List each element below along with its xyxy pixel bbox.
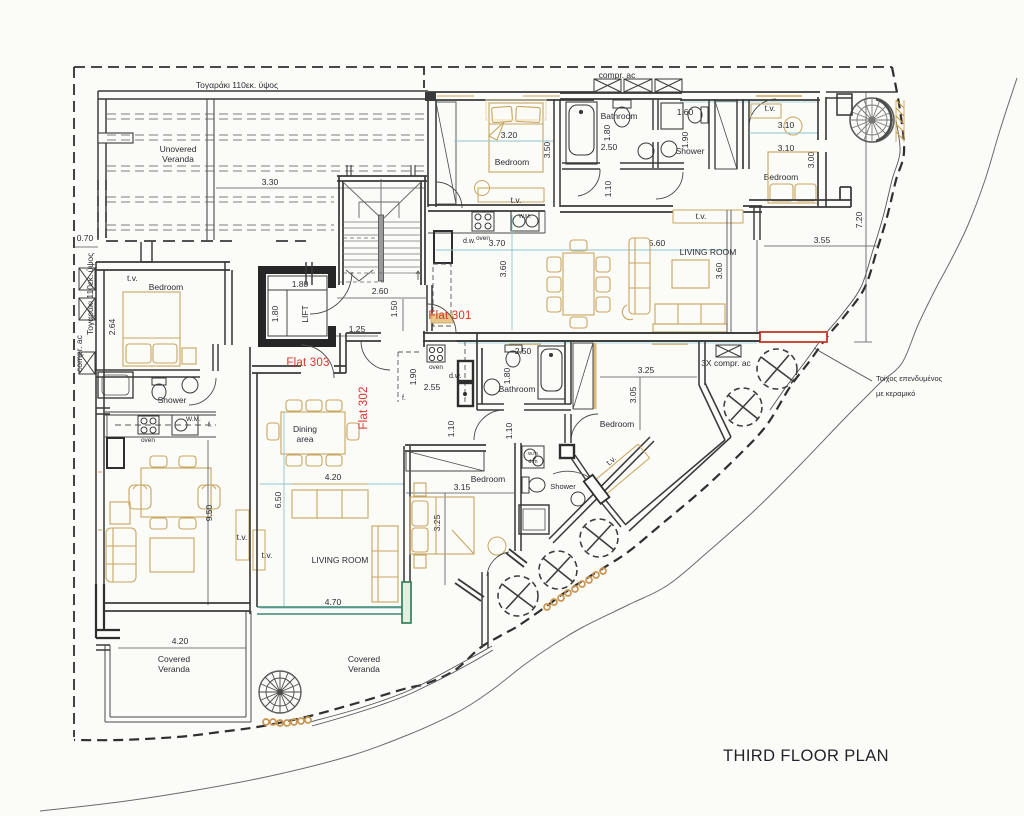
svg-text:6.50: 6.50 — [273, 491, 283, 508]
svg-text:t.v.: t.v. — [262, 550, 273, 560]
svg-text:3.05: 3.05 — [628, 386, 638, 403]
svg-text:t.v.: t.v. — [765, 103, 776, 113]
svg-text:1.80: 1.80 — [602, 124, 612, 141]
svg-text:Shower: Shower — [676, 146, 705, 156]
svg-text:1.50: 1.50 — [389, 300, 399, 317]
svg-text:Τογαράκι 110εκ. ύψος: Τογαράκι 110εκ. ύψος — [85, 253, 95, 335]
svg-text:3.70: 3.70 — [489, 238, 506, 248]
svg-text:2.50: 2.50 — [601, 142, 618, 152]
svg-text:Bedroom: Bedroom — [764, 172, 799, 182]
svg-text:t.v.: t.v. — [127, 273, 138, 283]
svg-text:3.30: 3.30 — [262, 177, 279, 187]
svg-text:area: area — [296, 434, 313, 444]
svg-text:1.10: 1.10 — [603, 180, 613, 197]
svg-text:1.10: 1.10 — [504, 422, 514, 439]
svg-text:2.60: 2.60 — [372, 286, 389, 296]
svg-text:3.55: 3.55 — [814, 235, 831, 245]
svg-text:w.m: w.m — [527, 451, 538, 457]
svg-text:Bathroom: Bathroom — [499, 384, 536, 394]
svg-text:3.60: 3.60 — [498, 260, 508, 277]
svg-text:d.m: d.m — [528, 459, 538, 465]
svg-text:Bedroom: Bedroom — [149, 282, 184, 292]
svg-text:3.50: 3.50 — [542, 141, 552, 158]
svg-text:2.55: 2.55 — [424, 382, 441, 392]
svg-text:9.50: 9.50 — [204, 504, 214, 521]
svg-text:3.10: 3.10 — [778, 120, 795, 130]
svg-text:3X compr. ac: 3X compr. ac — [701, 358, 751, 368]
svg-text:3.60: 3.60 — [714, 262, 724, 279]
svg-text:oven: oven — [429, 364, 443, 371]
svg-text:4.70: 4.70 — [325, 597, 342, 607]
svg-text:f.: f. — [402, 395, 406, 402]
svg-text:Τογαράκι 110εκ. ύψος: Τογαράκι 110εκ. ύψος — [196, 80, 278, 90]
svg-text:W.M.: W.M. — [186, 416, 201, 423]
svg-text:Covered: Covered — [348, 654, 380, 664]
svg-text:Veranda: Veranda — [162, 154, 194, 164]
svg-text:Shower: Shower — [550, 482, 576, 491]
svg-text:2.50: 2.50 — [515, 346, 532, 356]
svg-text:d.w.: d.w. — [463, 238, 476, 245]
svg-text:1.90: 1.90 — [408, 368, 418, 385]
svg-text:d.w.: d.w. — [449, 373, 462, 380]
svg-text:t.v.: t.v. — [511, 195, 522, 205]
svg-text:Flat 302: Flat 302 — [358, 386, 370, 429]
svg-text:1.80: 1.80 — [270, 305, 280, 322]
svg-text:Unovered: Unovered — [160, 144, 197, 154]
svg-text:W.M.: W.M. — [519, 214, 532, 220]
svg-text:LIVING ROOM: LIVING ROOM — [680, 247, 737, 257]
svg-text:3.15: 3.15 — [454, 482, 471, 492]
svg-text:με κεραμικό: με κεραμικό — [876, 389, 915, 398]
svg-text:4.20: 4.20 — [325, 472, 342, 482]
svg-text:Bedroom: Bedroom — [471, 474, 506, 484]
svg-text:THIRD FLOOR PLAN: THIRD FLOOR PLAN — [723, 747, 889, 765]
svg-text:1.10: 1.10 — [446, 420, 456, 437]
svg-text:5.60: 5.60 — [649, 238, 666, 248]
svg-text:Τοίχος επενδυμένος: Τοίχος επενδυμένος — [876, 374, 943, 383]
svg-text:3.25: 3.25 — [638, 365, 655, 375]
svg-text:Veranda: Veranda — [158, 664, 190, 674]
svg-text:Bedroom: Bedroom — [495, 157, 530, 167]
svg-text:3.25: 3.25 — [432, 514, 442, 531]
svg-text:Dining: Dining — [293, 424, 317, 434]
svg-text:f.: f. — [208, 422, 212, 429]
svg-text:Bedroom: Bedroom — [600, 419, 635, 429]
svg-text:3.20: 3.20 — [501, 130, 518, 140]
svg-text:t.v.: t.v. — [237, 532, 248, 542]
svg-text:0.70: 0.70 — [77, 233, 94, 243]
svg-text:LIVING ROOM: LIVING ROOM — [312, 555, 369, 565]
svg-text:3.00: 3.00 — [806, 151, 816, 168]
svg-text:4.20: 4.20 — [172, 636, 189, 646]
svg-text:Flat 303: Flat 303 — [286, 357, 329, 369]
svg-text:Flat 301: Flat 301 — [428, 310, 471, 322]
svg-text:Bathroom: Bathroom — [601, 111, 638, 121]
svg-text:7.20: 7.20 — [854, 211, 864, 228]
svg-text:t.v.: t.v. — [696, 211, 707, 221]
svg-text:Veranda: Veranda — [348, 664, 380, 674]
svg-text:Shower: Shower — [158, 395, 187, 405]
svg-text:LIFT: LIFT — [300, 305, 310, 322]
svg-text:1.80: 1.80 — [502, 367, 512, 384]
svg-text:2.64: 2.64 — [107, 318, 117, 335]
svg-text:Covered: Covered — [158, 654, 190, 664]
svg-text:oven: oven — [141, 437, 155, 444]
